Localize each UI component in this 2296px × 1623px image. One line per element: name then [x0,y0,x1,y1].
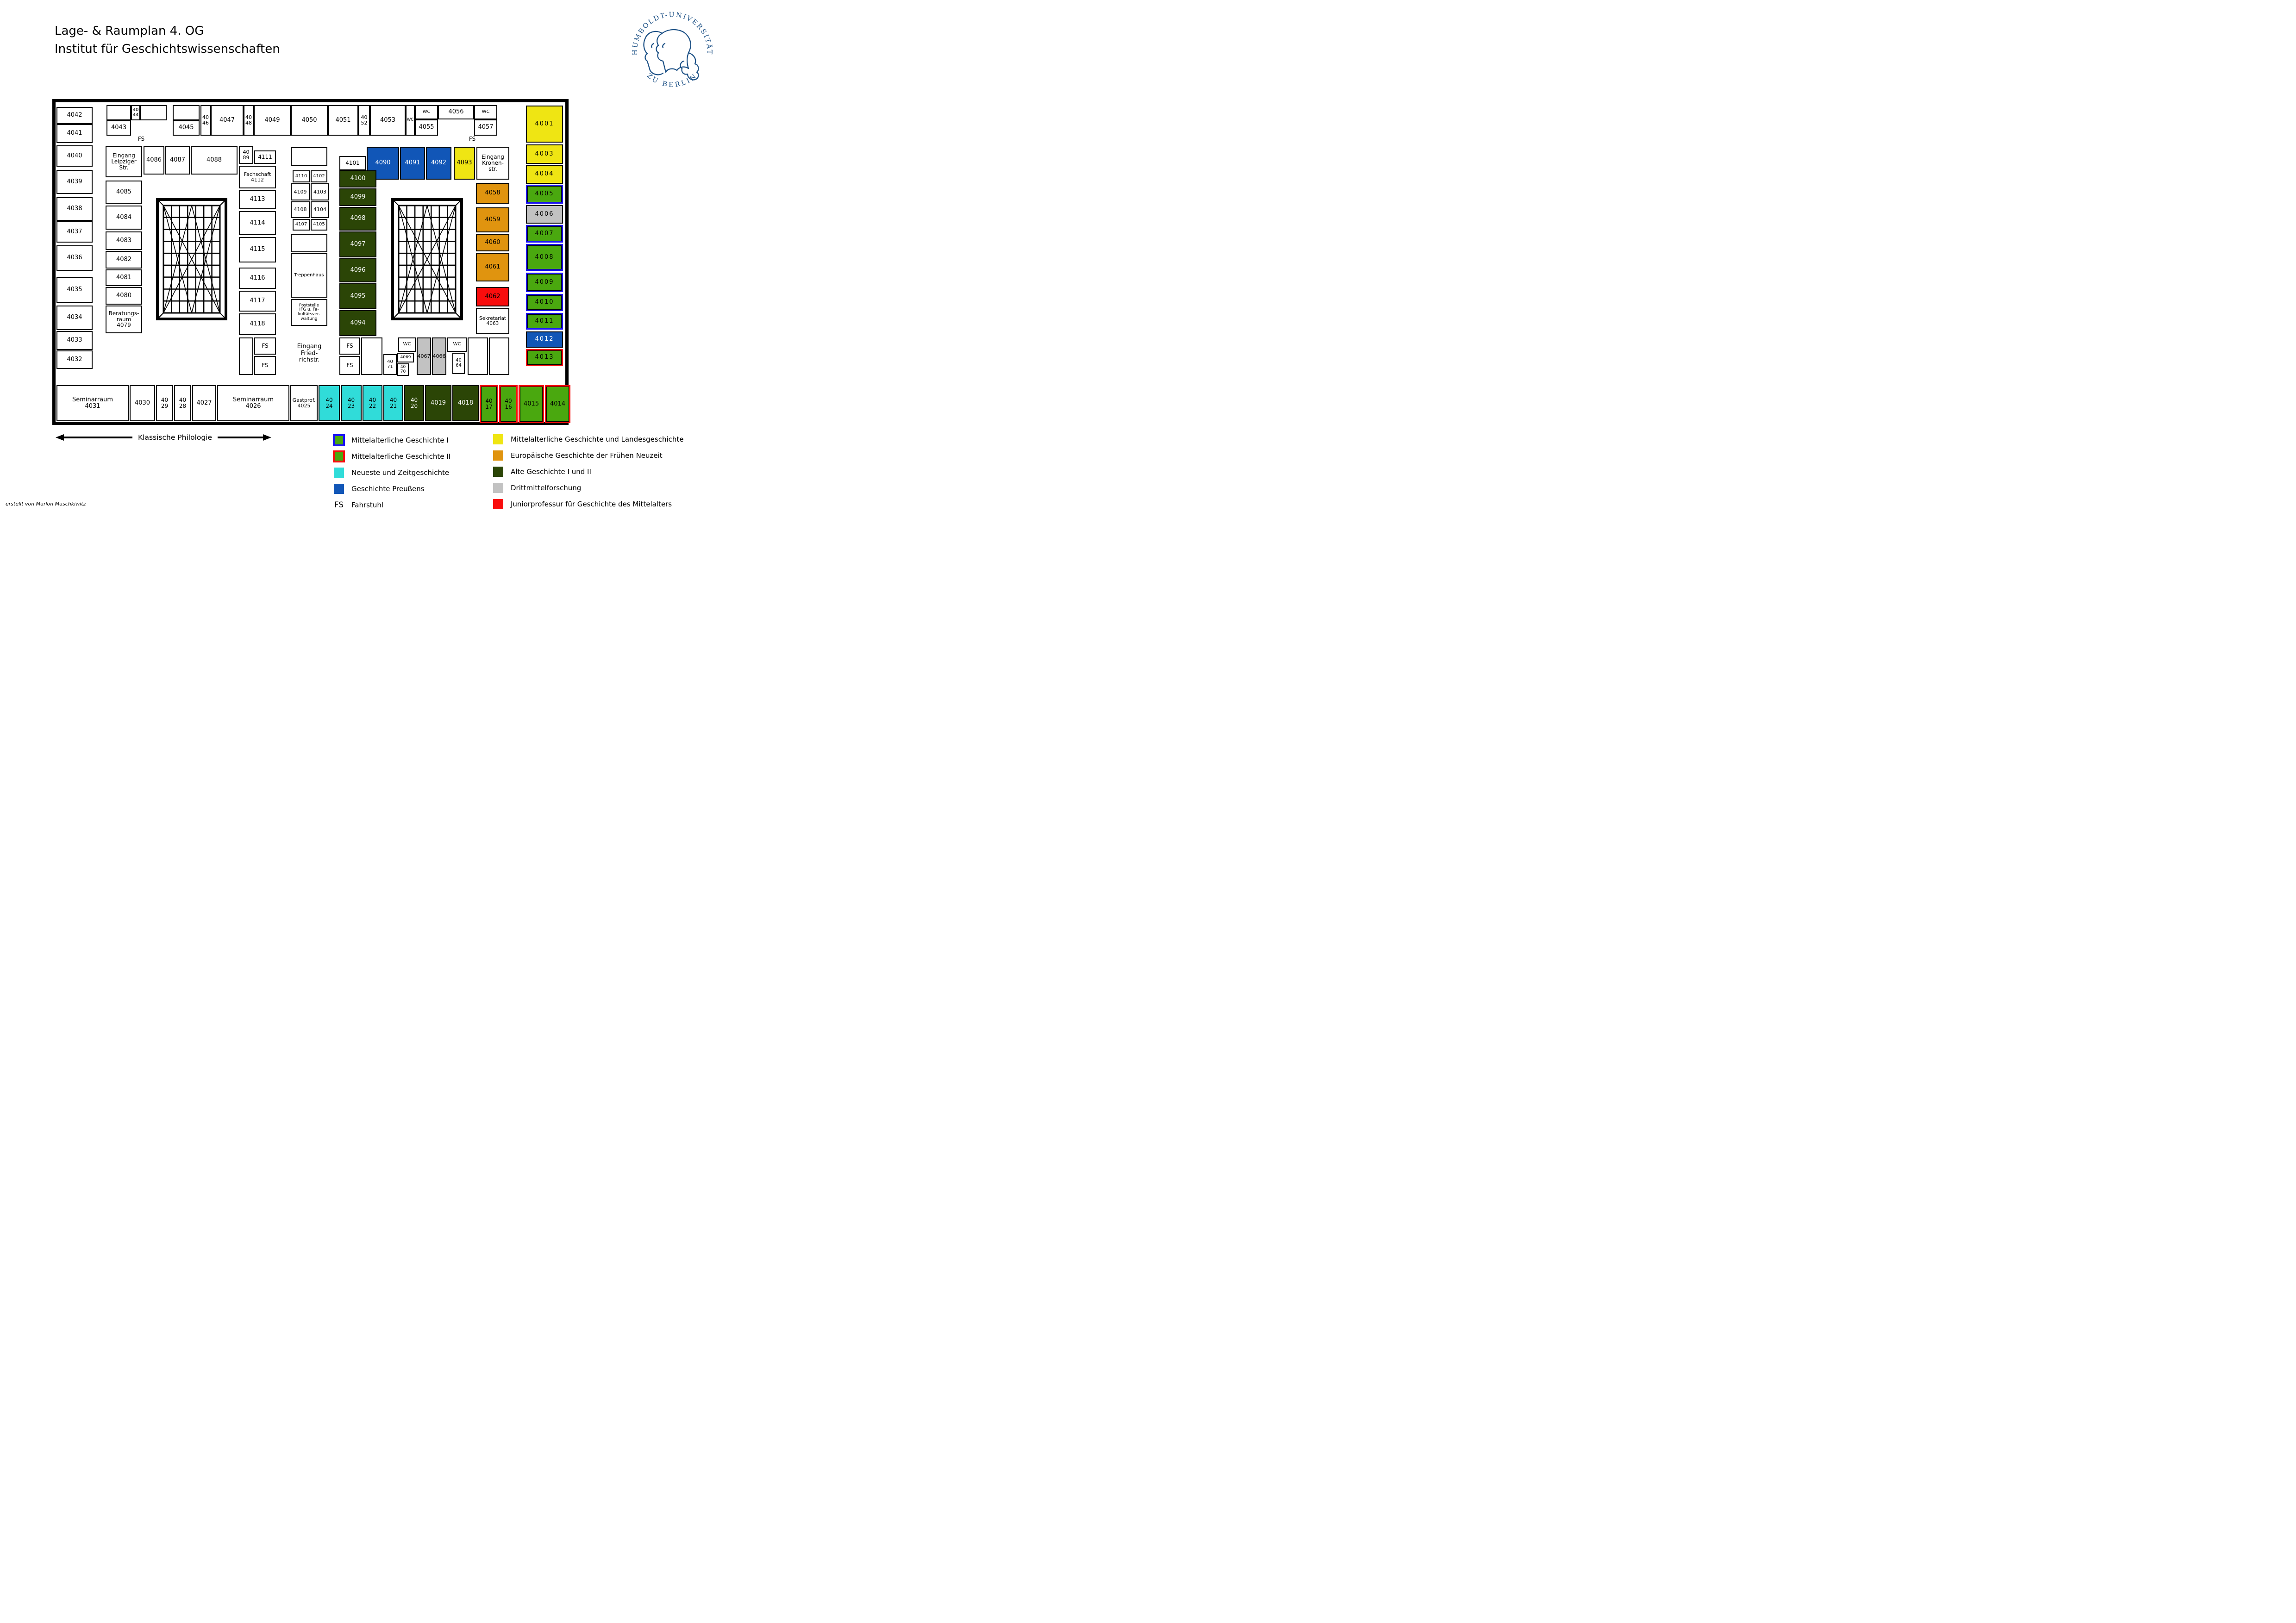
room-4041: 4041 [56,124,93,143]
arrow-right-icon [217,434,271,441]
room-4030: 4030 [130,385,155,421]
room-seminarraum-4026: Seminarraum 4026 [217,385,289,421]
room-4100: 4100 [339,170,376,187]
room-blank-i [489,337,509,375]
room-4104: 4104 [311,201,329,218]
room-4086: 4086 [144,146,164,175]
room-4040: 4040 [56,145,93,167]
room-4052: 40 52 [358,105,370,136]
legend-label: Europäische Geschichte der Frühen Neuzei… [511,451,663,460]
room-4105: 4105 [311,219,327,231]
room-4008: 4008 [526,244,563,271]
room-wc-3: WC [474,105,497,119]
room-wc-5: WC [447,337,467,352]
room-4067: 4067 [417,337,431,375]
room-4087: 4087 [165,146,190,175]
legend-swatch-blue-icon [334,484,344,494]
room-4027: 4027 [192,385,216,421]
room-4108: 4108 [291,201,310,218]
room-4005: 4005 [526,185,563,204]
room-4004: 4004 [526,165,563,184]
room-4055: 4055 [415,119,438,136]
room-4050: 4050 [291,105,328,136]
room-4103: 4103 [311,183,329,200]
room-blank-h [468,337,488,375]
room-4118: 4118 [239,313,276,335]
legend-label: Geschichte Preußens [351,485,425,493]
legend-item-cyan: Neueste und Zeitgeschichte [333,467,450,479]
room-4064: 40 64 [452,353,465,374]
credit-note: erstellt von Marlon Maschkiwitz [6,501,86,507]
room-treppenhaus: Treppenhaus [291,253,327,298]
room-4028: 40 28 [174,385,191,421]
svg-text:HUMBOLDT-UNIVERSITÄT: HUMBOLDT-UNIVERSITÄT [632,11,713,56]
room-4022: 40 22 [363,385,382,421]
room-4037: 4037 [56,221,93,243]
room-4024: 40 24 [319,385,340,421]
page-title: Lage- & Raumplan 4. OG Institut für Gesc… [55,22,280,58]
room-4045: 4045 [173,120,200,136]
legend-item-gray: Drittmittelforschung [492,482,683,494]
room-4021: 40 21 [383,385,403,421]
corridor-label: Klassische Philologie [138,433,212,442]
room-4003: 4003 [526,144,563,164]
room-4099: 4099 [339,188,376,206]
room-4006: 4006 [526,205,563,224]
room-blank-d [239,337,253,375]
hu-berlin-logo: HUMBOLDT-UNIVERSITÄT · ZU BERLIN · [632,11,713,93]
room-4066: 4066 [432,337,446,375]
room-4080: 4080 [106,287,142,305]
room-4042: 4042 [56,107,93,124]
room-4023: 40 23 [341,385,362,421]
room-4009: 4009 [526,273,563,292]
room-4056: 4056 [438,105,474,119]
room-4015: 4015 [519,385,544,423]
room-4071: 40 71 [383,354,397,375]
room-4088: 4088 [191,146,238,175]
room-4019: 4019 [425,385,451,421]
legend-swatch-green-red-icon [333,450,345,462]
room-4044: 40 44 [131,105,140,120]
room-4101: 4101 [339,156,366,170]
legend-left: Mittelalterliche Geschichte IMittelalter… [333,434,450,511]
legend-fs-key: FS [333,500,345,510]
room-eingang-leipziger: Eingang Leipziger Str. [106,146,142,177]
room-4062: 4062 [476,287,509,306]
room-4109: 4109 [291,183,310,200]
room-4096: 4096 [339,258,376,282]
legend-label: Neueste und Zeitgeschichte [351,468,449,477]
room-fs-c: FS [339,337,360,355]
room-4047: 4047 [211,105,244,136]
room-4011: 4011 [526,313,563,330]
legend-item-dark: Alte Geschichte I und II [492,466,683,478]
room-4043: 4043 [106,120,131,136]
room-fs-a: FS [254,337,276,355]
room-wc-2: WC [415,105,438,119]
room-blank-f [291,234,327,252]
room-seminarraum-4031: Seminarraum 4031 [56,385,129,421]
room-4014: 4014 [545,385,570,423]
room-4115: 4115 [239,237,276,262]
label-fs-corridor-left: FS [132,135,150,144]
room-4032: 4032 [56,350,93,369]
courtyard-right [391,198,463,320]
title-line-1: Lage- & Raumplan 4. OG [55,22,280,40]
room-4020: 40 20 [404,385,424,421]
room-4091: 4091 [400,147,425,180]
room-4016: 40 16 [499,385,518,423]
logo-arc-bottom-text: · ZU BERLIN · [643,46,702,89]
room-4092: 4092 [426,147,451,180]
room-4001: 4001 [526,106,563,143]
room-4034: 4034 [56,306,93,330]
room-fs-b: FS [254,356,276,375]
legend-label: Alte Geschichte I und II [511,468,591,476]
room-4082: 4082 [106,251,142,268]
room-4095: 4095 [339,283,376,309]
room-4093: 4093 [454,147,475,180]
room-4039: 4039 [56,170,93,194]
legend-swatch-cyan-icon [334,468,344,478]
room-eingang-kronenstr: Eingang Kronen- str. [476,147,509,180]
humboldt-heads-icon [644,30,699,80]
legend-label: Mittelalterliche Geschichte II [351,452,450,461]
room-4110: 4110 [293,170,310,182]
room-4070: 40 70 [397,363,409,376]
room-blank-c [173,105,200,120]
logo-arc-top-text: HUMBOLDT-UNIVERSITÄT [632,11,713,56]
room-poststelle: Poststelle IFG u. Fa- kultätsver- waltun… [291,299,327,326]
room-blank-a [106,105,131,120]
room-4018: 4018 [452,385,479,421]
legend-item-fs: FSFahrstuhl [333,499,450,511]
legend-swatch-green-blue-icon [333,434,345,446]
room-4107: 4107 [293,219,310,231]
legend-label: Drittmittelforschung [511,484,581,492]
room-4013: 4013 [526,349,563,366]
room-4111: 4111 [254,150,276,164]
room-4084: 4084 [106,206,142,230]
room-4117: 4117 [239,291,276,312]
title-line-2: Institut für Geschichtswissenschaften [55,40,280,58]
room-4025: Gastprof. 4025 [290,385,318,421]
room-4089: 40 89 [239,146,253,164]
room-blank-g [361,337,382,375]
room-4069: 4069 [397,353,414,362]
room-4114: 4114 [239,211,276,235]
room-4102: 4102 [311,170,327,182]
legend-swatch-red-icon [493,499,503,509]
room-blank-b [140,105,167,120]
room-fs-d: FS [339,356,360,375]
room-4049: 4049 [254,105,291,136]
room-4053: 4053 [370,105,406,136]
room-4046: 40 46 [200,105,211,136]
room-4116: 4116 [239,268,276,289]
room-4059: 4059 [476,207,509,232]
room-4079: Beratungs- raum 4079 [106,306,142,333]
room-4058: 4058 [476,183,509,204]
courtyard-left [156,198,227,320]
label-fs-corridor-right: FS [463,135,482,144]
legend-swatch-gray-icon [493,483,503,493]
room-4048: 40 48 [244,105,254,136]
corridor-arrow-row: Klassische Philologie [56,433,282,442]
room-4012: 4012 [526,331,563,348]
room-wc-1: WC [406,105,415,136]
legend-right: Mittelalterliche Geschichte und Landesge… [492,433,683,510]
room-4081: 4081 [106,269,142,286]
legend-swatch-dark-icon [493,467,503,477]
room-4060: 4060 [476,234,509,251]
legend-item-orange: Europäische Geschichte der Frühen Neuzei… [492,449,683,462]
room-4017: 40 17 [480,385,498,423]
room-wc-4: WC [398,337,416,352]
legend-item-green-red: Mittelalterliche Geschichte II [333,450,450,462]
room-4085: 4085 [106,181,142,204]
room-4035: 4035 [56,277,93,303]
room-4098: 4098 [339,207,376,231]
legend-label: Mittelalterliche Geschichte I [351,436,449,444]
room-4051: 4051 [328,105,358,136]
label-eingang-friedrichstr: Eingang Fried- richstr. [288,341,331,367]
room-4029: 40 29 [156,385,173,421]
room-4036: 4036 [56,245,93,271]
room-4063: Sekretariat 4063 [476,308,509,334]
room-4057: 4057 [474,119,497,136]
arrow-left-icon [56,434,133,441]
room-4033: 4033 [56,331,93,350]
legend-label: Mittelalterliche Geschichte und Landesge… [511,435,683,443]
legend-label: Fahrstuhl [351,501,383,509]
room-4094: 4094 [339,310,376,336]
room-4083: 4083 [106,231,142,250]
legend-item-green-blue: Mittelalterliche Geschichte I [333,434,450,446]
svg-text:· ZU BERLIN ·: · ZU BERLIN · [643,46,702,89]
room-4061: 4061 [476,253,509,281]
room-4097: 4097 [339,231,376,257]
room-4113: 4113 [239,190,276,209]
legend-item-red: Juniorprofessur für Geschichte des Mitte… [492,498,683,510]
room-4010: 4010 [526,294,563,311]
legend-item-yellow: Mittelalterliche Geschichte und Landesge… [492,433,683,445]
room-4007: 4007 [526,225,563,243]
legend-swatch-orange-icon [493,450,503,461]
room-blank-e [291,147,327,166]
room-4038: 4038 [56,197,93,221]
room-4112: Fachschaft 4112 [239,166,276,188]
page: Lage- & Raumplan 4. OG Institut für Gesc… [0,0,715,511]
legend-label: Juniorprofessur für Geschichte des Mitte… [511,500,672,508]
legend-swatch-yellow-icon [493,434,503,444]
legend-item-blue: Geschichte Preußens [333,483,450,495]
